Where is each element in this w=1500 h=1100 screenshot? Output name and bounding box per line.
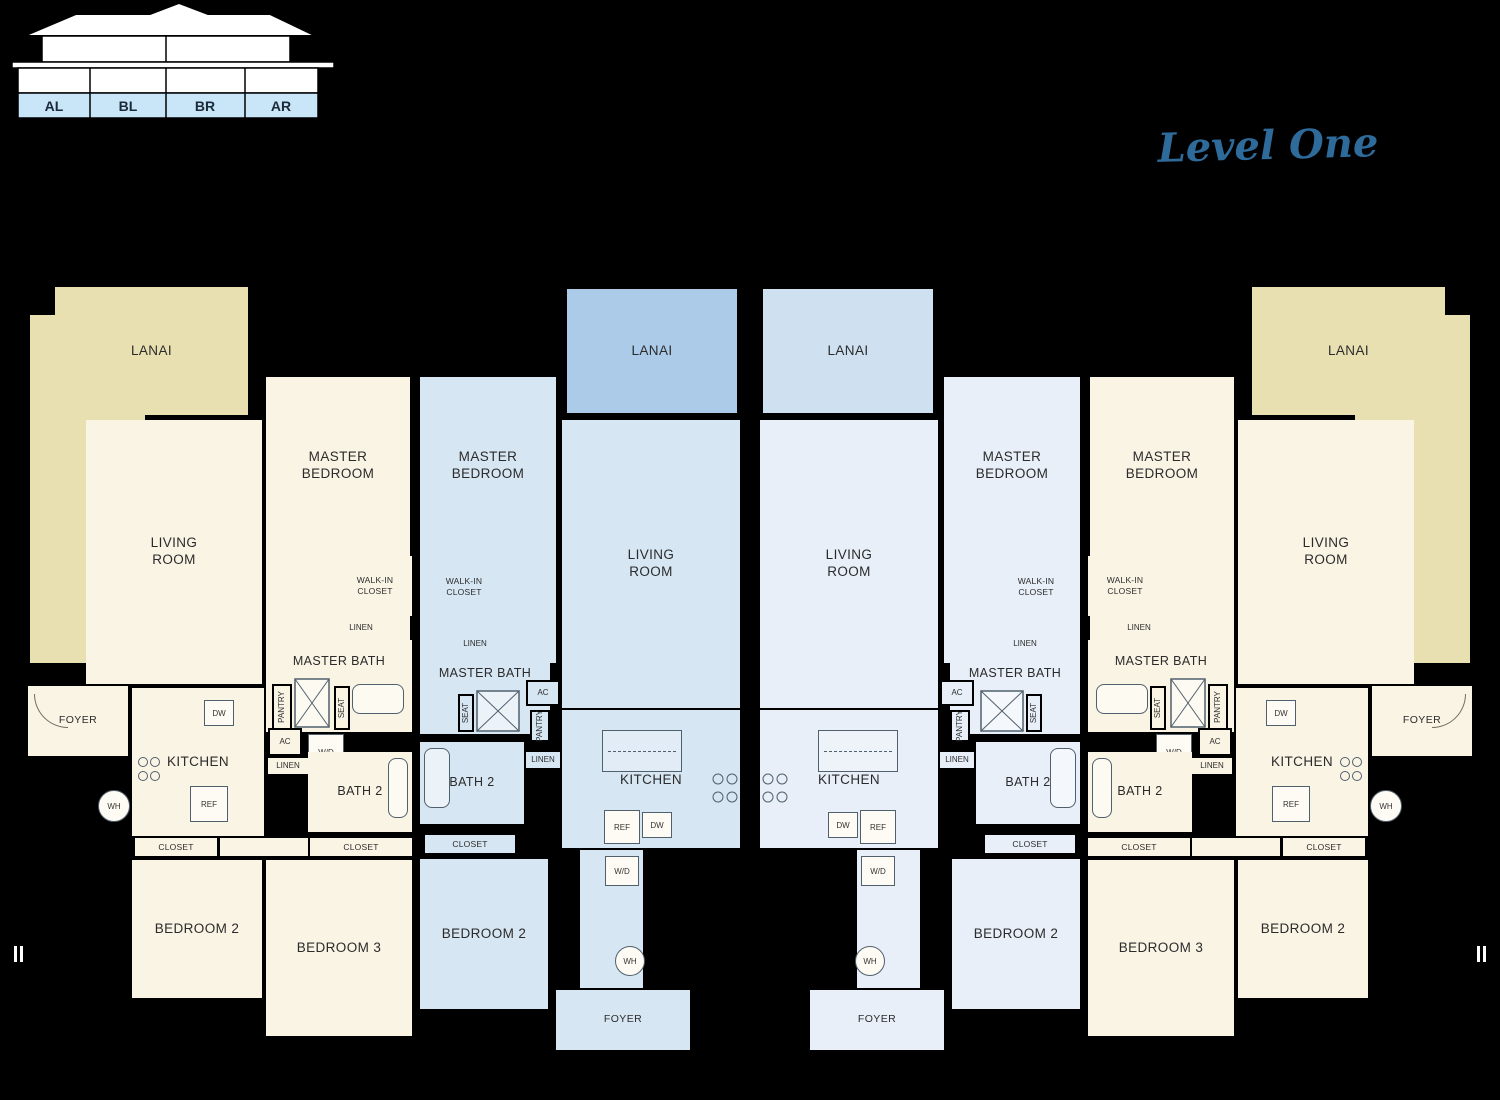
- ar-lanai-right-wing: [1410, 315, 1470, 663]
- al-master-bedroom: MASTER BEDROOM: [266, 377, 410, 663]
- br-living-room: LIVING ROOM: [760, 420, 938, 708]
- ar-seat: SEAT: [1150, 686, 1166, 730]
- br-foyer: FOYER: [810, 990, 944, 1050]
- al-living-room: LIVING ROOM: [86, 420, 262, 684]
- unit-cell-al: AL: [45, 98, 64, 114]
- level-title: Level One: [1147, 119, 1388, 172]
- al-bedroom-3: BEDROOM 3: [266, 860, 412, 1036]
- roof-outline: [24, 3, 316, 36]
- ar-bath2-tub: [1092, 758, 1112, 818]
- bl-foyer: FOYER: [556, 990, 690, 1050]
- br-walk-in-closet: WALK-IN CLOSET: [997, 556, 1075, 618]
- ar-linen: LINEN: [1118, 620, 1160, 636]
- br-shower-icon: [980, 690, 1024, 732]
- br-bath2-tub: [1050, 748, 1076, 808]
- al-linen: LINEN: [340, 620, 382, 636]
- unit-cell-bl: BL: [119, 98, 138, 114]
- br-pantry: PANTRY: [950, 710, 970, 742]
- right-wall-break-marker: [1477, 946, 1486, 962]
- ar-walk-in-closet: WALK-IN CLOSET: [1088, 556, 1162, 616]
- br-linen: LINEN: [1005, 636, 1045, 652]
- bl-water-heater: WH: [615, 946, 645, 976]
- br-seat: SEAT: [1026, 694, 1042, 732]
- bl-washer-dryer: W/D: [605, 856, 639, 886]
- bl-pantry-label: PANTRY: [535, 710, 545, 742]
- al-closet-bed2: CLOSET: [135, 838, 217, 856]
- br-washer-dryer: W/D: [861, 856, 895, 886]
- ar-master-tub: [1096, 684, 1148, 714]
- al-stove-icon: [136, 754, 162, 784]
- bl-stove-icon: [710, 770, 740, 806]
- bl-kitchen-island: [602, 730, 682, 772]
- bl-refrigerator: REF: [604, 810, 640, 844]
- lower-story: [18, 68, 318, 93]
- br-bedroom-2: BEDROOM 2: [952, 859, 1080, 1009]
- ar-living-room: LIVING ROOM: [1238, 420, 1414, 684]
- bl-walk-in-closet: WALK-IN CLOSET: [425, 556, 503, 618]
- bl-linen: LINEN: [455, 636, 495, 652]
- al-bedroom-2: BEDROOM 2: [132, 860, 262, 998]
- br-refrigerator: REF: [860, 810, 896, 844]
- building-elevation-key: AL BL BR AR: [0, 0, 360, 122]
- left-wall-break-marker: [14, 946, 23, 962]
- bl-pantry: PANTRY: [530, 710, 550, 742]
- ar-bedroom-2: BEDROOM 2: [1238, 860, 1368, 998]
- br-dishwasher: DW: [828, 812, 858, 838]
- bl-seat-label: SEAT: [461, 703, 471, 723]
- al-hallway: [220, 838, 308, 856]
- ar-linen-2: LINEN: [1192, 758, 1232, 774]
- bl-seat: SEAT: [458, 694, 474, 732]
- al-shower-icon: [294, 678, 330, 728]
- br-water-heater: WH: [855, 946, 885, 976]
- br-closet-bed2: CLOSET: [985, 835, 1075, 853]
- al-ac-closet: AC: [268, 728, 302, 756]
- br-master-bedroom: MASTER BEDROOM: [944, 377, 1080, 663]
- al-lanai-left-wing: [30, 315, 90, 663]
- al-pantry: PANTRY: [272, 684, 292, 730]
- br-linen-2: LINEN: [940, 752, 974, 768]
- br-kitchen-island: [818, 730, 898, 772]
- al-water-heater: WH: [98, 790, 130, 822]
- ar-ac-closet: AC: [1198, 728, 1232, 756]
- ar-pantry: PANTRY: [1208, 684, 1228, 730]
- al-linen-2: LINEN: [268, 758, 308, 774]
- bl-bath2-tub: [424, 748, 450, 808]
- br-ac-closet: AC: [940, 680, 974, 706]
- bl-dishwasher: DW: [642, 812, 672, 838]
- unit-cell-ar: AR: [271, 98, 291, 114]
- ar-water-heater: WH: [1370, 790, 1402, 822]
- ar-dishwasher: DW: [1266, 700, 1296, 726]
- bl-living-room: LIVING ROOM: [562, 420, 740, 708]
- unit-cell-br: BR: [195, 98, 215, 114]
- ar-hallway: [1192, 838, 1280, 856]
- ar-closet-bed2: CLOSET: [1283, 838, 1365, 856]
- ar-bedroom-3: BEDROOM 3: [1088, 860, 1234, 1036]
- al-closet-bed3: CLOSET: [310, 838, 412, 856]
- al-master-tub: [352, 684, 404, 714]
- ar-master-bedroom: MASTER BEDROOM: [1090, 377, 1234, 663]
- bl-lanai: LANAI: [567, 289, 737, 413]
- al-refrigerator: REF: [190, 786, 228, 822]
- ar-shower-icon: [1170, 678, 1206, 728]
- bl-shower-icon: [476, 690, 520, 732]
- br-seat-label: SEAT: [1029, 703, 1039, 723]
- br-lanai: LANAI: [763, 289, 933, 413]
- floor-plan-canvas: LANAI LIVING ROOM MASTER BEDROOM WALK-IN…: [0, 0, 1500, 1100]
- al-walk-in-closet: WALK-IN CLOSET: [338, 556, 412, 616]
- bl-ac-closet: AC: [526, 680, 560, 706]
- ar-pantry-label: PANTRY: [1213, 691, 1223, 723]
- bl-linen-2: LINEN: [526, 752, 560, 768]
- ar-stove-icon: [1338, 754, 1364, 784]
- ar-closet-bed3: CLOSET: [1088, 838, 1190, 856]
- bl-bedroom-2: BEDROOM 2: [420, 859, 548, 1009]
- br-stove-icon: [760, 770, 790, 806]
- al-bath2-tub: [388, 758, 408, 818]
- bl-closet-bed2: CLOSET: [425, 835, 515, 853]
- al-pantry-label: PANTRY: [277, 691, 287, 723]
- br-pantry-label: PANTRY: [955, 710, 965, 742]
- ar-refrigerator: REF: [1272, 786, 1310, 822]
- eave-band: [12, 62, 334, 68]
- ar-seat-label: SEAT: [1153, 698, 1163, 718]
- al-dishwasher: DW: [204, 700, 234, 726]
- al-seat-label: SEAT: [337, 698, 347, 718]
- bl-master-bedroom: MASTER BEDROOM: [420, 377, 556, 663]
- al-seat: SEAT: [334, 686, 350, 730]
